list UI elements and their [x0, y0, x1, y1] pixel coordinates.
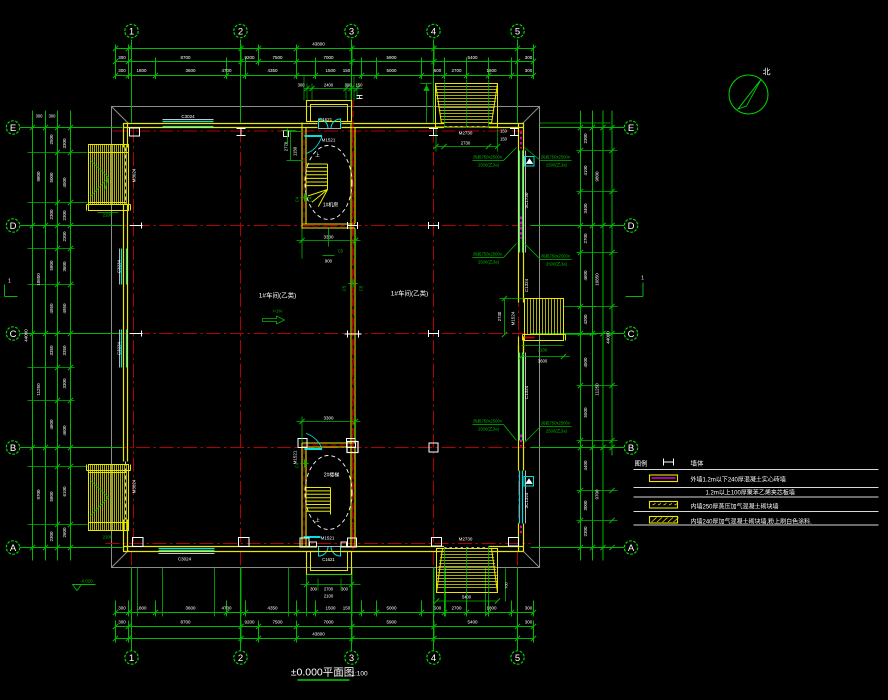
- svg-text:8700: 8700: [180, 55, 191, 60]
- svg-text:9200: 9200: [244, 620, 255, 625]
- svg-text:2300: 2300: [49, 209, 54, 220]
- svg-text:M1524: M1524: [511, 311, 516, 325]
- svg-text:5: 5: [515, 26, 520, 37]
- svg-text:300: 300: [525, 606, 533, 611]
- svg-text:1: 1: [129, 653, 134, 664]
- svg-text:44000: 44000: [24, 329, 29, 342]
- svg-text:4700: 4700: [221, 606, 232, 611]
- svg-text:M2730: M2730: [459, 537, 473, 542]
- svg-text:风机750x2500x: 风机750x2500x: [473, 251, 503, 258]
- svg-text:150: 150: [500, 129, 508, 134]
- svg-text:4350: 4350: [267, 68, 278, 73]
- svg-text:1800: 1800: [136, 606, 147, 611]
- svg-text:3C1730: 3C1730: [524, 192, 529, 208]
- svg-text:4350: 4350: [267, 606, 278, 611]
- svg-text:300: 300: [118, 68, 126, 73]
- svg-text:300: 300: [341, 587, 349, 592]
- svg-text:E: E: [10, 123, 16, 134]
- svg-text:2300: 2300: [49, 531, 54, 542]
- svg-text:5900: 5900: [386, 620, 397, 625]
- svg-text:4100: 4100: [583, 165, 588, 176]
- svg-text:300: 300: [118, 55, 126, 60]
- svg-text:3400: 3400: [583, 203, 588, 214]
- svg-text:M1521: M1521: [322, 138, 336, 143]
- svg-text:2#楼梯: 2#楼梯: [324, 472, 340, 479]
- svg-text:外墙1.2m以下240厚混凝土实心砖墙: 外墙1.2m以下240厚混凝土实心砖墙: [691, 476, 786, 484]
- svg-text:500: 500: [434, 68, 442, 73]
- svg-text:4400: 4400: [583, 460, 588, 471]
- svg-text:300: 300: [525, 55, 533, 60]
- svg-text:C4: C4: [295, 462, 300, 468]
- svg-text:北: 北: [763, 68, 771, 77]
- svg-text:C1324: C1324: [524, 385, 529, 399]
- svg-text:3: 3: [349, 653, 354, 664]
- svg-text:8700: 8700: [180, 620, 191, 625]
- svg-text:1#机房: 1#机房: [323, 202, 339, 209]
- svg-text:300: 300: [525, 620, 533, 625]
- svg-text:9700: 9700: [595, 489, 600, 500]
- svg-text:5400: 5400: [467, 55, 478, 60]
- svg-text:M1521: M1521: [293, 450, 298, 464]
- svg-text:墙体: 墙体: [691, 459, 705, 468]
- svg-text:2100: 2100: [103, 535, 113, 540]
- svg-text:2500(乙3a): 2500(乙3a): [546, 261, 568, 267]
- svg-text:2300: 2300: [62, 231, 67, 242]
- svg-text:4500: 4500: [583, 357, 588, 368]
- svg-text:5000: 5000: [386, 606, 397, 611]
- svg-text:M2730: M2730: [459, 131, 473, 136]
- svg-text:上: 上: [315, 517, 320, 523]
- svg-text:A: A: [10, 543, 17, 554]
- svg-text:11250: 11250: [36, 383, 41, 396]
- svg-text:3000: 3000: [583, 500, 588, 511]
- svg-text:3: 3: [349, 26, 354, 37]
- svg-text:M3024: M3024: [132, 168, 137, 182]
- svg-text:4950: 4950: [49, 303, 54, 314]
- svg-text:5400: 5400: [462, 595, 472, 600]
- svg-text:C1324: C1324: [524, 278, 529, 292]
- svg-text:B: B: [628, 443, 634, 454]
- svg-text:9800: 9800: [595, 171, 600, 182]
- svg-text:6100: 6100: [62, 486, 67, 497]
- svg-text:5000: 5000: [386, 68, 397, 73]
- svg-text:2300: 2300: [583, 526, 588, 537]
- svg-text:3C1324: 3C1324: [524, 492, 529, 508]
- svg-text:1150: 1150: [293, 146, 298, 156]
- svg-text:风机750x2500x: 风机750x2500x: [541, 420, 571, 427]
- svg-text:风机750x2500x: 风机750x2500x: [473, 154, 503, 161]
- svg-text:5000: 5000: [49, 172, 54, 183]
- svg-text:C3024: C3024: [181, 114, 195, 119]
- svg-text:44000: 44000: [606, 331, 611, 344]
- svg-text:700: 700: [505, 582, 509, 588]
- svg-text:C: C: [10, 329, 17, 340]
- svg-text:150: 150: [343, 606, 351, 611]
- svg-text:500: 500: [434, 606, 442, 611]
- svg-text:B: B: [10, 443, 16, 454]
- svg-text:5400: 5400: [467, 620, 478, 625]
- svg-text:风机750x2500x: 风机750x2500x: [473, 418, 503, 425]
- svg-text:M1521: M1521: [321, 536, 335, 541]
- svg-text:300: 300: [49, 114, 57, 119]
- svg-text:1800: 1800: [486, 606, 497, 611]
- svg-text:C5: C5: [359, 285, 364, 291]
- svg-text:4200: 4200: [583, 314, 588, 325]
- svg-text:2500(乙3a): 2500(乙3a): [478, 426, 500, 432]
- svg-text:图例: 图例: [635, 459, 648, 468]
- svg-text:7000: 7000: [323, 620, 334, 625]
- svg-text:2: 2: [238, 26, 243, 37]
- svg-text:2100: 2100: [324, 594, 334, 599]
- svg-text:3300: 3300: [323, 416, 334, 421]
- svg-text:4950: 4950: [62, 303, 67, 314]
- svg-text:2500: 2500: [49, 134, 54, 145]
- svg-text:1#车间(乙类): 1#车间(乙类): [391, 289, 429, 298]
- svg-text:C4: C4: [295, 196, 300, 202]
- svg-text:2700: 2700: [451, 68, 462, 73]
- svg-text:43800: 43800: [312, 632, 325, 637]
- svg-text:4600: 4600: [62, 425, 67, 436]
- svg-text:2500(乙3a): 2500(乙3a): [546, 162, 568, 168]
- svg-text:1.2m以上100厚聚苯乙烯夹芯板墙: 1.2m以上100厚聚苯乙烯夹芯板墙: [706, 489, 795, 497]
- svg-text:7500: 7500: [272, 620, 283, 625]
- svg-text:3600: 3600: [185, 606, 196, 611]
- svg-text:C3024: C3024: [178, 557, 192, 562]
- svg-text:1: 1: [8, 279, 11, 285]
- svg-text:1: 1: [641, 276, 644, 282]
- svg-text:5800: 5800: [49, 491, 54, 502]
- svg-text:2500(乙3a): 2500(乙3a): [478, 259, 500, 265]
- svg-text:上: 上: [315, 152, 320, 158]
- svg-text:300: 300: [118, 606, 126, 611]
- svg-text:D: D: [10, 221, 17, 232]
- svg-text:300: 300: [36, 114, 44, 119]
- svg-text:3600: 3600: [62, 261, 67, 272]
- svg-text:5: 5: [515, 653, 520, 664]
- svg-text:2100: 2100: [103, 213, 113, 218]
- svg-text:900: 900: [325, 259, 333, 264]
- svg-text:-0.020: -0.020: [80, 579, 93, 584]
- svg-text:内墙250厚蒸压加气混凝土砌块墙: 内墙250厚蒸压加气混凝土砌块墙: [691, 503, 779, 511]
- svg-text:300: 300: [345, 83, 353, 88]
- svg-text:3350: 3350: [62, 345, 67, 356]
- svg-text:7500: 7500: [272, 55, 283, 60]
- svg-text:4600: 4600: [49, 419, 54, 430]
- svg-text:C5: C5: [342, 285, 347, 291]
- svg-text:7000: 7000: [323, 55, 334, 60]
- svg-text:C1621: C1621: [322, 557, 335, 562]
- svg-text:150: 150: [500, 137, 508, 142]
- svg-text:C5: C5: [338, 249, 344, 254]
- svg-text:2400: 2400: [324, 83, 334, 88]
- svg-text:1#车间(乙类): 1#车间(乙类): [259, 291, 297, 300]
- svg-text:3300: 3300: [62, 138, 67, 149]
- svg-text:C4: C4: [308, 196, 313, 202]
- svg-text:9200: 9200: [244, 55, 255, 60]
- svg-text:10850: 10850: [36, 273, 41, 286]
- svg-text:i=1%: i=1%: [273, 309, 283, 314]
- svg-text:3300: 3300: [62, 378, 67, 389]
- svg-text:2100: 2100: [538, 348, 548, 353]
- svg-text:2500(乙3a): 2500(乙3a): [546, 428, 568, 434]
- svg-text:风机750x2500x: 风机750x2500x: [541, 154, 571, 161]
- svg-text:±0.000平面图: ±0.000平面图: [291, 667, 355, 679]
- svg-text:2300: 2300: [583, 133, 588, 144]
- svg-text:2730: 2730: [461, 141, 471, 146]
- svg-text:4700: 4700: [221, 68, 232, 73]
- svg-text:3350: 3350: [49, 345, 54, 356]
- svg-text:1800: 1800: [136, 68, 147, 73]
- svg-text:11250: 11250: [595, 383, 600, 396]
- svg-text:4600: 4600: [583, 270, 588, 281]
- svg-text:9800: 9800: [36, 171, 41, 182]
- svg-text:风机750x2500x: 风机750x2500x: [541, 253, 571, 260]
- svg-text:5900: 5900: [386, 55, 397, 60]
- svg-text:2700: 2700: [451, 606, 462, 611]
- svg-text:2500(乙3a): 2500(乙3a): [478, 162, 500, 168]
- svg-text:1500: 1500: [325, 606, 336, 611]
- svg-text:1500: 1500: [325, 68, 336, 73]
- svg-text:2700: 2700: [324, 587, 334, 592]
- svg-text:150: 150: [343, 68, 351, 73]
- svg-text:5500: 5500: [583, 407, 588, 418]
- svg-text:4: 4: [431, 26, 436, 37]
- svg-text:300: 300: [298, 83, 306, 88]
- svg-text:5800: 5800: [49, 260, 54, 271]
- svg-text:1:100: 1:100: [351, 671, 368, 678]
- svg-text:10850: 10850: [595, 273, 600, 286]
- svg-text:C: C: [628, 329, 635, 340]
- svg-text:内墙240厚加气混凝土砌块墙,粉上刷白色涂料.: 内墙240厚加气混凝土砌块墙,粉上刷白色涂料.: [691, 518, 813, 526]
- svg-text:E: E: [628, 123, 634, 134]
- svg-text:2700: 2700: [583, 233, 588, 244]
- svg-text:300: 300: [310, 587, 318, 592]
- svg-text:4: 4: [431, 653, 436, 664]
- svg-text:2: 2: [238, 653, 243, 664]
- svg-text:3600: 3600: [185, 68, 196, 73]
- svg-text:1: 1: [129, 26, 134, 37]
- svg-text:1800: 1800: [486, 68, 497, 73]
- svg-text:3600: 3600: [538, 359, 548, 364]
- svg-text:2730: 2730: [497, 311, 502, 321]
- svg-text:300: 300: [118, 620, 126, 625]
- svg-text:4500: 4500: [62, 177, 67, 188]
- svg-text:43800: 43800: [312, 42, 325, 47]
- svg-text:A: A: [628, 543, 635, 554]
- svg-text:9700: 9700: [36, 489, 41, 500]
- svg-text:D: D: [628, 221, 635, 232]
- svg-text:M3024: M3024: [132, 479, 137, 493]
- svg-text:300: 300: [525, 68, 533, 73]
- svg-text:C3234: C3234: [117, 341, 122, 355]
- svg-text:150: 150: [356, 83, 364, 88]
- svg-text:C1621: C1621: [319, 117, 333, 122]
- svg-text:C3234: C3234: [117, 259, 122, 273]
- svg-text:2600: 2600: [62, 527, 67, 538]
- svg-text:2300: 2300: [62, 210, 67, 221]
